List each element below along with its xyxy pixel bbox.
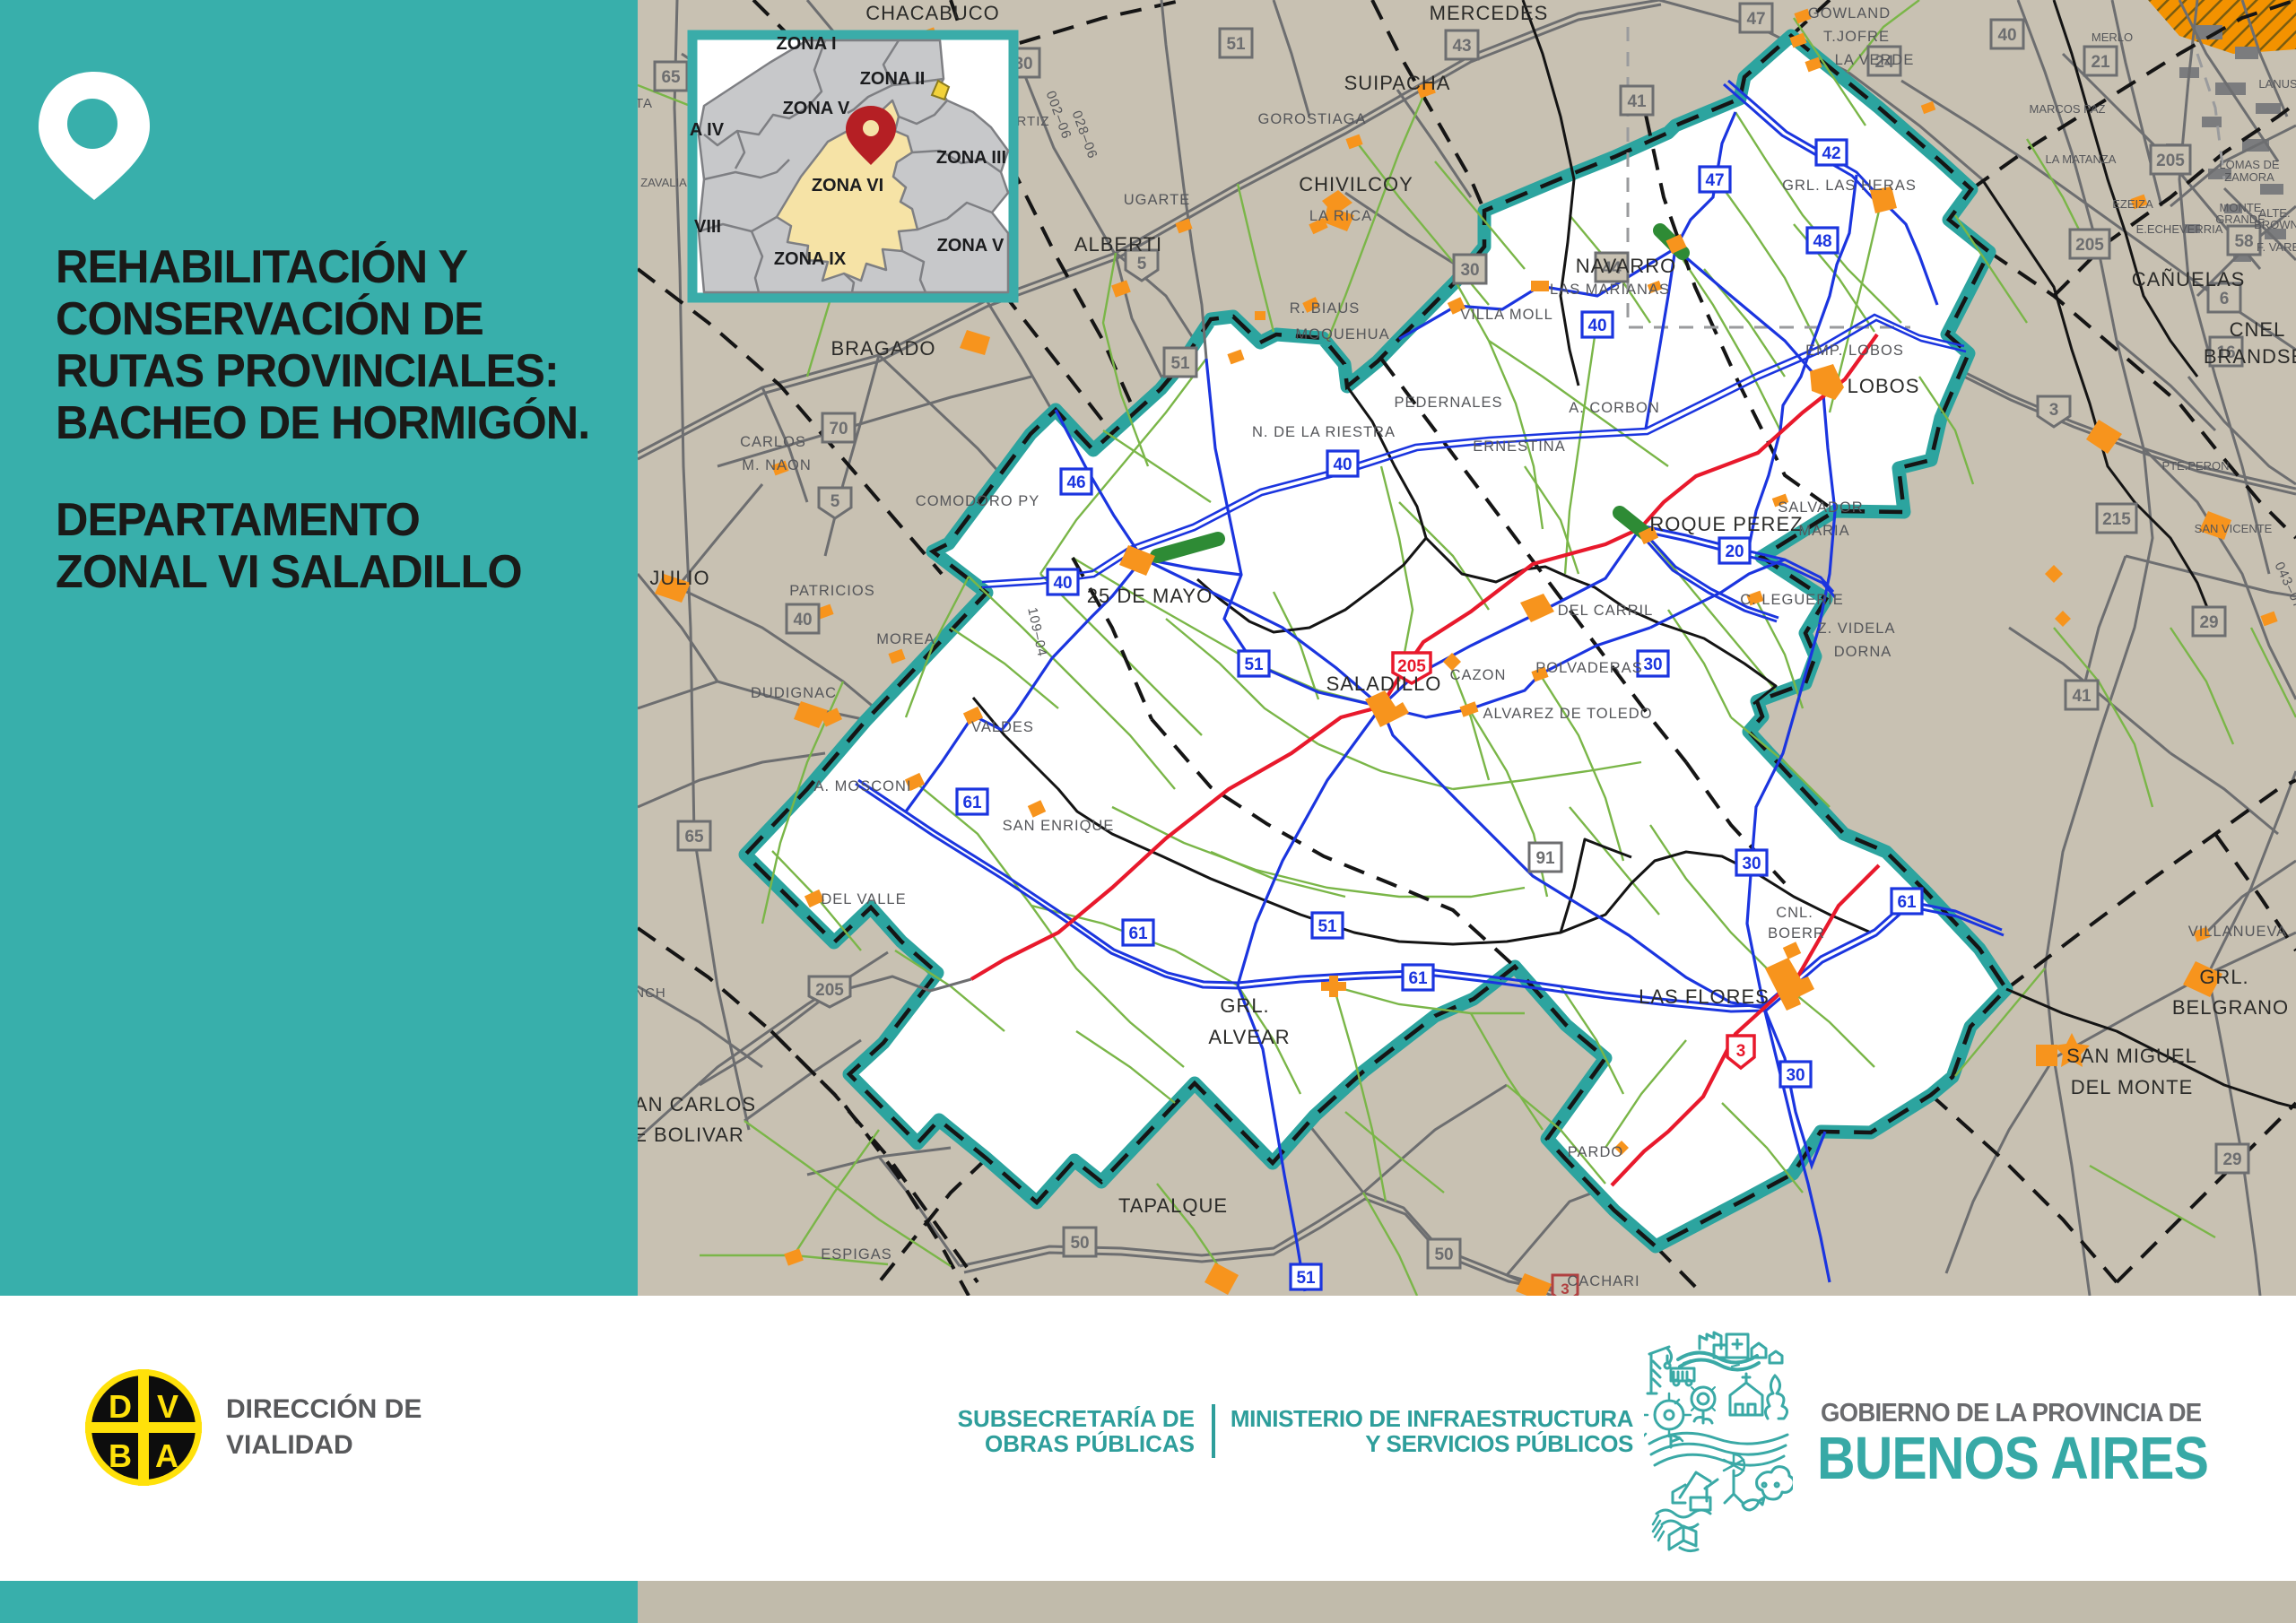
svg-text:BRAGADO: BRAGADO xyxy=(831,337,935,360)
svg-text:ZONA VI: ZONA VI xyxy=(812,176,883,195)
svg-text:BELGRANO: BELGRANO xyxy=(2172,996,2289,1019)
svg-text:T.JOFRE: T.JOFRE xyxy=(1823,29,1890,45)
svg-text:DEL VALLE: DEL VALLE xyxy=(821,891,906,907)
svg-text:ZONA IX: ZONA IX xyxy=(774,249,847,269)
svg-text:AN CARLOS: AN CARLOS xyxy=(638,1093,756,1115)
svg-text:50: 50 xyxy=(1070,1234,1089,1253)
svg-text:21: 21 xyxy=(2091,53,2110,72)
svg-text:ZAVALIA: ZAVALIA xyxy=(640,176,687,189)
svg-text:SAN MIGUEL: SAN MIGUEL xyxy=(2066,1045,2197,1067)
svg-text:205: 205 xyxy=(2156,152,2185,170)
svg-text:58: 58 xyxy=(2234,232,2253,251)
svg-text:46: 46 xyxy=(1066,473,1085,492)
svg-text:61: 61 xyxy=(962,794,982,812)
svg-text:ROQUE PEREZ: ROQUE PEREZ xyxy=(1649,513,1803,535)
svg-text:51: 51 xyxy=(1226,35,1246,54)
svg-text:SALVADOR: SALVADOR xyxy=(1778,499,1863,516)
svg-text:LOMAS DE: LOMAS DE xyxy=(2219,158,2280,171)
svg-text:UGARTE: UGARTE xyxy=(1124,192,1190,208)
svg-text:GRL.: GRL. xyxy=(2199,966,2248,988)
svg-text:ZONA II: ZONA II xyxy=(860,69,926,89)
svg-text:BRANDSEN: BRANDSEN xyxy=(2204,345,2296,368)
svg-text:PEDERNALES: PEDERNALES xyxy=(1395,395,1503,411)
svg-text:A. CORBON: A. CORBON xyxy=(1569,400,1660,416)
svg-text:30: 30 xyxy=(1643,655,1662,674)
svg-text:BOERR: BOERR xyxy=(1768,925,1825,942)
svg-text:3: 3 xyxy=(2049,401,2059,420)
svg-text:42: 42 xyxy=(1822,144,1840,163)
svg-text:29: 29 xyxy=(2222,1150,2241,1169)
svg-text:LA MATANZA: LA MATANZA xyxy=(2046,152,2117,166)
svg-text:LAS MARIANAS: LAS MARIANAS xyxy=(1550,282,1670,298)
svg-text:Z. VIDELA: Z. VIDELA xyxy=(1818,621,1896,637)
svg-text:R. BIAUS: R. BIAUS xyxy=(1290,300,1361,317)
svg-text:20: 20 xyxy=(1725,542,1744,561)
svg-text:E.ECHEVERRIA: E.ECHEVERRIA xyxy=(2136,222,2223,236)
svg-text:PATRICIOS: PATRICIOS xyxy=(789,583,874,599)
svg-text:CHACABUCO: CHACABUCO xyxy=(865,2,1000,24)
svg-text:ZAMORA: ZAMORA xyxy=(2224,170,2274,184)
svg-text:TAPALQUE: TAPALQUE xyxy=(1118,1194,1228,1217)
svg-text:51: 51 xyxy=(1318,917,1337,936)
svg-text:RTIZ: RTIZ xyxy=(1016,114,1049,129)
svg-text:VIII: VIII xyxy=(694,217,721,237)
svg-text:ALVEAR: ALVEAR xyxy=(1208,1026,1290,1048)
svg-text:CAÑUELAS: CAÑUELAS xyxy=(2132,268,2246,291)
svg-text:B: B xyxy=(109,1437,132,1474)
svg-text:61: 61 xyxy=(1897,893,1917,912)
svg-text:91: 91 xyxy=(1535,849,1555,868)
svg-text:COMODORO PY: COMODORO PY xyxy=(916,493,1039,509)
svg-text:EZEIZA: EZEIZA xyxy=(2112,197,2153,211)
svg-text:POLVADERAS: POLVADERAS xyxy=(1535,660,1642,676)
svg-text:40: 40 xyxy=(1333,456,1352,474)
svg-text:PTE.PERON: PTE.PERON xyxy=(2161,459,2229,473)
svg-text:MARIA: MARIA xyxy=(1798,523,1849,539)
svg-text:DUDIGNAC: DUDIGNAC xyxy=(751,685,837,701)
svg-text:V: V xyxy=(157,1388,178,1425)
svg-text:CAZON: CAZON xyxy=(1450,667,1507,683)
svg-text:MERLO: MERLO xyxy=(2092,30,2133,44)
svg-text:EMP. LOBOS: EMP. LOBOS xyxy=(1805,343,1904,359)
svg-text:DEL MONTE: DEL MONTE xyxy=(2071,1076,2194,1098)
svg-text:MOREA: MOREA xyxy=(876,631,935,647)
svg-text:LA RICA: LA RICA xyxy=(1309,208,1372,224)
svg-text:D: D xyxy=(109,1388,132,1425)
svg-text:65: 65 xyxy=(661,68,681,87)
svg-text:DEL CARRIL: DEL CARRIL xyxy=(1558,603,1654,619)
svg-text:GRL. LAS HERAS: GRL. LAS HERAS xyxy=(1782,178,1917,194)
svg-text:30: 30 xyxy=(1460,261,1479,280)
svg-text:GOROSTIAGA: GOROSTIAGA xyxy=(1258,111,1367,127)
svg-text:ALBERTI: ALBERTI xyxy=(1074,233,1162,256)
svg-text:PARDO: PARDO xyxy=(1568,1144,1623,1160)
svg-text:47: 47 xyxy=(1746,10,1765,29)
svg-text:JULIO: JULIO xyxy=(649,567,709,589)
svg-text:215: 215 xyxy=(2102,510,2131,529)
svg-text:50: 50 xyxy=(1434,1245,1453,1264)
svg-text:5: 5 xyxy=(1137,255,1147,273)
svg-text:ZONA V: ZONA V xyxy=(937,236,1004,256)
svg-text:CACHARI: CACHARI xyxy=(1567,1273,1639,1289)
svg-text:SAN ENRIQUE: SAN ENRIQUE xyxy=(1003,818,1115,834)
svg-text:41: 41 xyxy=(1627,92,1647,111)
svg-text:3: 3 xyxy=(1736,1042,1746,1061)
svg-text:205: 205 xyxy=(2075,236,2104,255)
svg-text:A: A xyxy=(155,1437,178,1474)
svg-text:SAN VICENTE: SAN VICENTE xyxy=(2195,522,2273,535)
svg-text:M. NAON: M. NAON xyxy=(742,457,812,473)
svg-text:61: 61 xyxy=(1408,969,1428,988)
svg-text:51: 51 xyxy=(1296,1269,1316,1288)
svg-text:40: 40 xyxy=(1053,574,1072,593)
svg-text:47: 47 xyxy=(1705,171,1724,190)
svg-text:30: 30 xyxy=(1742,855,1761,873)
svg-text:GOWLAND: GOWLAND xyxy=(1808,5,1891,22)
svg-text:N. DE LA RIESTRA: N. DE LA RIESTRA xyxy=(1252,424,1396,440)
svg-text:40: 40 xyxy=(1587,317,1606,335)
svg-text:GRANDE: GRANDE xyxy=(2215,213,2266,226)
svg-text:ZONA III: ZONA III xyxy=(936,148,1006,168)
svg-text:SUIPACHA: SUIPACHA xyxy=(1344,72,1451,94)
svg-text:LAS FLORES: LAS FLORES xyxy=(1639,985,1770,1008)
svg-text:ALVAREZ DE TOLEDO: ALVAREZ DE TOLEDO xyxy=(1483,706,1652,722)
svg-text:48: 48 xyxy=(1813,232,1831,251)
svg-text:MERCEDES: MERCEDES xyxy=(1430,2,1549,24)
svg-text:25 DE MAYO: 25 DE MAYO xyxy=(1087,585,1213,607)
svg-text:E BOLIVAR: E BOLIVAR xyxy=(638,1124,744,1146)
svg-text:LOBOS: LOBOS xyxy=(1848,375,1920,397)
svg-text:51: 51 xyxy=(1244,655,1264,674)
svg-text:GRL.: GRL. xyxy=(1220,994,1269,1017)
svg-text:C. LEGUERIE: C. LEGUERIE xyxy=(1740,592,1844,608)
svg-text:SALADILLO: SALADILLO xyxy=(1326,673,1442,695)
svg-text:ZONA I: ZONA I xyxy=(776,34,836,54)
svg-text:CARLOS: CARLOS xyxy=(740,434,806,450)
svg-text:VILLA MOLL: VILLA MOLL xyxy=(1460,307,1553,323)
svg-text:ERNESTINA: ERNESTINA xyxy=(1473,438,1565,455)
svg-text:41: 41 xyxy=(2072,687,2092,706)
svg-text:A. MOSCONI: A. MOSCONI xyxy=(813,778,911,794)
svg-text:CNEL: CNEL xyxy=(2230,318,2286,341)
svg-text:ESPIGAS: ESPIGAS xyxy=(821,1246,891,1263)
svg-text:65: 65 xyxy=(684,828,704,846)
svg-text:CNL.: CNL. xyxy=(1776,905,1813,921)
svg-text:205: 205 xyxy=(815,981,844,1000)
svg-text:29: 29 xyxy=(2199,613,2218,632)
svg-text:VILLANUEVA: VILLANUEVA xyxy=(2188,924,2288,940)
svg-text:40: 40 xyxy=(793,611,812,629)
svg-text:61: 61 xyxy=(1128,924,1148,943)
svg-text:MARCOS PAZ: MARCOS PAZ xyxy=(2030,102,2106,116)
svg-text:ZONA V: ZONA V xyxy=(783,99,850,118)
svg-text:VALDES: VALDES xyxy=(971,719,1034,735)
svg-text:A IV: A IV xyxy=(690,120,725,140)
svg-text:LA VERDE: LA VERDE xyxy=(1835,52,1915,68)
svg-text:40: 40 xyxy=(1997,26,2016,45)
svg-text:70: 70 xyxy=(829,420,848,438)
svg-text:30: 30 xyxy=(1786,1066,1805,1085)
svg-text:DORNA: DORNA xyxy=(1834,644,1892,660)
svg-text:5: 5 xyxy=(831,492,840,511)
svg-text:LANUS: LANUS xyxy=(2258,77,2296,91)
svg-text:NCH: NCH xyxy=(638,985,666,1001)
svg-text:6: 6 xyxy=(2220,290,2230,308)
svg-text:CHIVILCOY: CHIVILCOY xyxy=(1299,173,1413,195)
svg-text:F. VARELA: F. VARELA xyxy=(2257,240,2296,254)
svg-text:NAVARRO: NAVARRO xyxy=(1576,255,1677,277)
svg-text:51: 51 xyxy=(1170,354,1190,373)
svg-text:TA: TA xyxy=(638,96,653,111)
svg-text:MOQUEHUA: MOQUEHUA xyxy=(1295,326,1389,343)
svg-text:43: 43 xyxy=(1452,37,1471,56)
